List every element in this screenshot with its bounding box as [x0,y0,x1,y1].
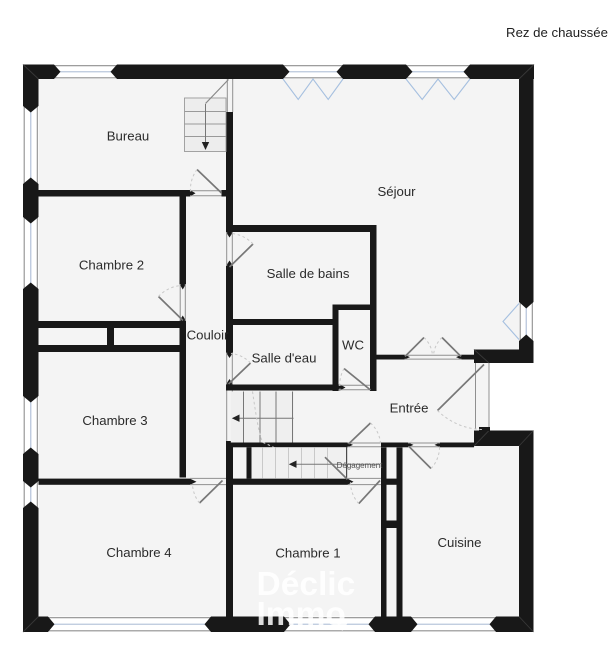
svg-text:Bureau: Bureau [107,129,150,144]
svg-text:Chambre 4: Chambre 4 [106,545,171,560]
svg-text:Séjour: Séjour [377,184,416,199]
svg-text:Dégagement: Dégagement [337,461,384,470]
svg-text:Cuisine: Cuisine [438,535,482,550]
svg-text:Salle d'eau: Salle d'eau [252,351,317,366]
svg-text:Salle de bains: Salle de bains [267,266,350,281]
svg-text:Entrée: Entrée [390,401,429,416]
svg-text:Chambre 1: Chambre 1 [275,546,340,561]
svg-text:Rez de chaussée: Rez de chaussée [506,25,608,40]
svg-text:Couloir: Couloir [187,328,229,343]
svg-text:Immo: Immo [257,596,346,633]
svg-text:Chambre 2: Chambre 2 [79,257,144,272]
svg-text:Chambre 3: Chambre 3 [82,413,147,428]
svg-text:WC: WC [342,337,364,352]
